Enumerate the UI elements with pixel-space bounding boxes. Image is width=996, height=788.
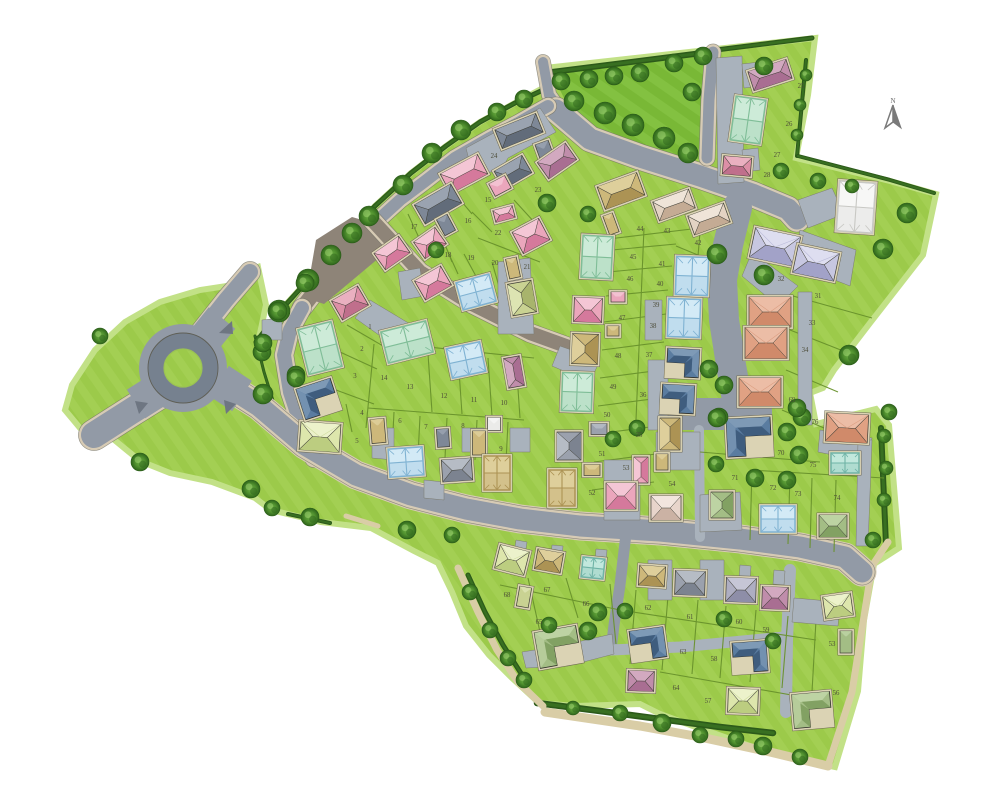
svg-text:74: 74 <box>834 495 841 502</box>
svg-text:4: 4 <box>360 410 364 417</box>
svg-text:12: 12 <box>441 393 448 400</box>
svg-text:31: 31 <box>815 293 822 300</box>
svg-text:53: 53 <box>623 465 630 472</box>
svg-text:3: 3 <box>353 373 357 380</box>
svg-text:10: 10 <box>501 400 508 407</box>
svg-text:73: 73 <box>795 491 802 498</box>
svg-text:16: 16 <box>465 218 472 225</box>
svg-text:33: 33 <box>809 320 816 327</box>
svg-text:68: 68 <box>504 592 511 599</box>
svg-text:21: 21 <box>524 264 531 271</box>
svg-text:61: 61 <box>687 614 694 621</box>
svg-text:71: 71 <box>732 475 739 482</box>
svg-text:36: 36 <box>640 392 647 399</box>
svg-text:58: 58 <box>711 656 718 663</box>
svg-text:43: 43 <box>664 228 671 235</box>
svg-text:9: 9 <box>499 446 503 453</box>
svg-text:34: 34 <box>802 347 809 354</box>
svg-text:11: 11 <box>471 397 478 404</box>
svg-text:51: 51 <box>599 451 606 458</box>
svg-text:6: 6 <box>398 418 402 425</box>
svg-text:14: 14 <box>381 375 388 382</box>
svg-text:75: 75 <box>810 462 817 469</box>
svg-text:15: 15 <box>485 197 492 204</box>
svg-text:59: 59 <box>763 627 770 634</box>
svg-text:72: 72 <box>770 485 777 492</box>
svg-text:67: 67 <box>544 587 551 594</box>
svg-text:57: 57 <box>705 698 712 705</box>
svg-text:39: 39 <box>653 302 660 309</box>
svg-text:38: 38 <box>650 323 657 330</box>
svg-text:24: 24 <box>491 153 498 160</box>
svg-text:5: 5 <box>355 438 359 445</box>
svg-text:35: 35 <box>636 432 643 439</box>
svg-text:63: 63 <box>680 649 687 656</box>
svg-text:42: 42 <box>695 240 702 247</box>
svg-text:19: 19 <box>468 255 475 262</box>
svg-text:22: 22 <box>495 230 502 237</box>
svg-text:54: 54 <box>669 481 676 488</box>
svg-text:26: 26 <box>786 121 793 128</box>
svg-text:8: 8 <box>461 423 465 430</box>
svg-text:13: 13 <box>407 384 414 391</box>
svg-text:76: 76 <box>812 419 819 426</box>
svg-text:60: 60 <box>736 619 743 626</box>
svg-text:18: 18 <box>445 252 452 259</box>
svg-text:17: 17 <box>411 224 418 231</box>
svg-text:28: 28 <box>764 172 771 179</box>
svg-text:46: 46 <box>627 276 634 283</box>
svg-text:20: 20 <box>492 260 499 267</box>
svg-text:48: 48 <box>615 353 622 360</box>
svg-text:49: 49 <box>610 384 617 391</box>
svg-text:70: 70 <box>778 450 785 457</box>
svg-text:64: 64 <box>673 685 680 692</box>
svg-text:23: 23 <box>535 187 542 194</box>
svg-text:47: 47 <box>619 315 626 322</box>
svg-text:50: 50 <box>604 412 611 419</box>
svg-text:62: 62 <box>645 605 652 612</box>
svg-text:25: 25 <box>798 83 805 90</box>
svg-text:1: 1 <box>368 324 371 331</box>
svg-text:66: 66 <box>583 601 590 608</box>
svg-text:52: 52 <box>589 490 596 497</box>
svg-text:2: 2 <box>360 346 364 353</box>
svg-text:40: 40 <box>657 281 664 288</box>
svg-text:37: 37 <box>646 352 653 359</box>
svg-text:53: 53 <box>829 641 836 648</box>
svg-text:41: 41 <box>659 261 666 268</box>
svg-text:7: 7 <box>424 424 428 431</box>
svg-text:56: 56 <box>833 690 840 697</box>
svg-text:N: N <box>890 97 895 105</box>
svg-text:45: 45 <box>630 254 637 261</box>
svg-text:27: 27 <box>774 152 781 159</box>
svg-text:44: 44 <box>637 226 644 233</box>
svg-text:65: 65 <box>536 619 543 626</box>
svg-text:32: 32 <box>778 276 785 283</box>
svg-text:69: 69 <box>789 397 796 404</box>
